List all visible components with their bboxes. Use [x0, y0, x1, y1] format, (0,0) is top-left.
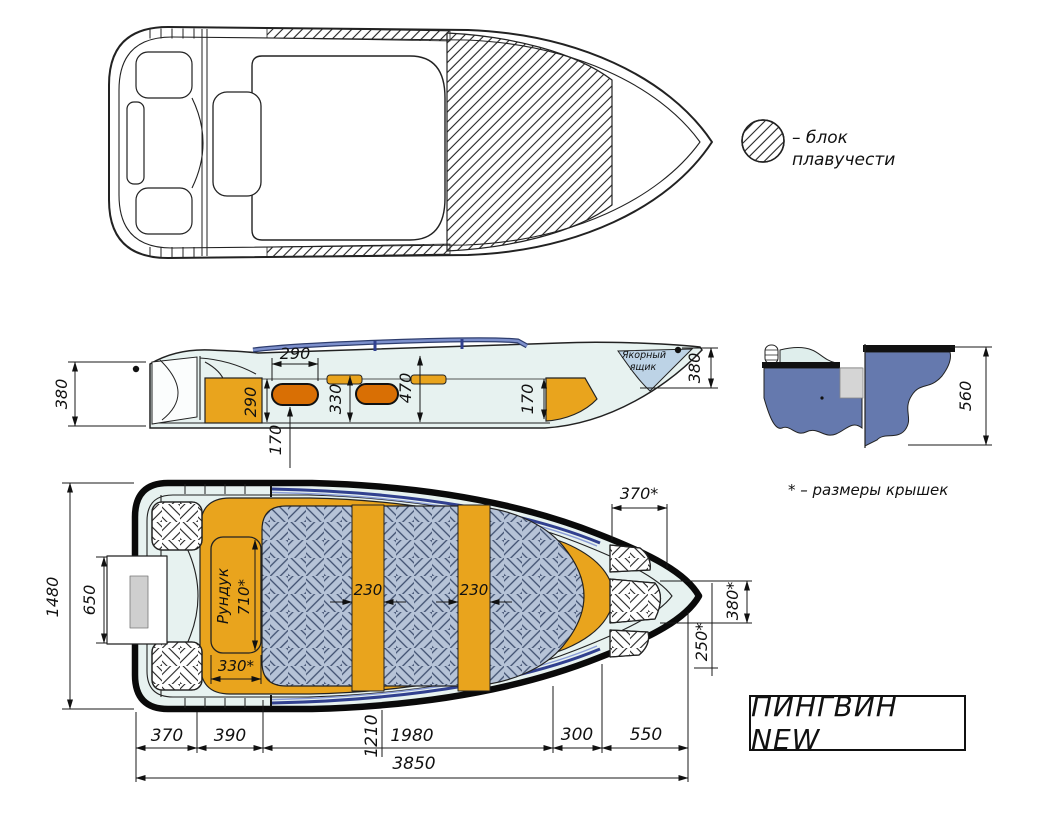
section-dot [820, 396, 823, 399]
gunwale-box-2 [411, 375, 446, 384]
section-gunwale-right [863, 345, 955, 352]
side-dim-bow-locker-height: 170 [520, 369, 536, 429]
plan-dim-bow-hatch-height: 380* [725, 571, 741, 631]
legend-label-line1: – блок [792, 130, 848, 146]
plan-dim-beam: 1480 [45, 567, 61, 627]
section-hull-right [865, 352, 951, 446]
chain-dim-390: 390 [205, 728, 255, 744]
anchor-box-label-line1: Якорный [619, 351, 669, 361]
legend-label-line2: плавучести [792, 152, 895, 168]
motor-well [152, 357, 197, 424]
footnote-covers: * – размеры крышек [788, 482, 948, 498]
buoyancy-block-stern-top-hatch [152, 502, 202, 550]
plan-dim-locker-length: 710* [236, 567, 252, 627]
plan-dim-bow-hatch-width: 370* [610, 486, 668, 502]
plan-dim-locker-width: 330* [208, 658, 264, 674]
chain-dim-1980: 1980 [384, 728, 440, 744]
anchor-box-label-line2: ящик [623, 363, 663, 373]
section-seatback [780, 348, 836, 364]
stern-cushion [136, 52, 192, 98]
plan-locker-label: Рундук [215, 565, 231, 627]
buoyancy-block-stern-bottom-hatch [152, 642, 202, 690]
plan-dim-transom-cutout: 650 [82, 570, 98, 630]
boat-model-title: ПИНГВИН NEW [751, 690, 964, 756]
chain-dim-1210: 1210 [364, 706, 380, 766]
side-dim-mid-locker-height: 330 [328, 369, 344, 429]
top-view-drawing [109, 27, 712, 258]
title-box: ПИНГВИН NEW [749, 695, 966, 751]
chain-dim-550: 550 [620, 727, 672, 743]
console [213, 92, 261, 196]
seat-pill-2 [356, 384, 398, 404]
deck-checker-floor [262, 506, 584, 686]
plan-dim-bench2: 230 [448, 582, 500, 598]
cockpit-opening [252, 56, 445, 240]
buoyancy-legend-hatch [742, 120, 784, 162]
bow-light [675, 347, 681, 353]
seat-pill-1 [272, 384, 318, 405]
boat-dimension-drawing: – блок плавучести 380 290 290 170 330 47… [0, 0, 1058, 822]
plan-dim-bench1: 230 [342, 582, 394, 598]
motor-mount-pad [130, 576, 148, 628]
chain-dim-370: 370 [142, 728, 192, 744]
bow-hatch-mid-hatch [610, 579, 661, 623]
side-dim-stern-box-height: 290 [243, 372, 259, 432]
side-dim-transom-height: 380 [54, 364, 70, 424]
side-dim-bow-height: 380 [687, 338, 703, 398]
section-roller [765, 345, 778, 364]
chain-dim-300: 300 [552, 727, 602, 743]
bow-patch-bottom-hatch [610, 630, 649, 657]
stern-cleat [133, 366, 139, 372]
side-dim-seat-width: 290 [272, 346, 318, 362]
stern-cushion [136, 188, 192, 234]
plan-view-drawing [62, 483, 752, 709]
plan-dim-bow-hatch-length: 250* [694, 612, 710, 672]
side-dim-seat-to-floor: 170 [268, 410, 284, 470]
legend-swatch [742, 120, 784, 162]
bow-buoyancy-hatch [447, 33, 612, 251]
section-gray-box [840, 368, 863, 398]
section-dim-height: 560 [958, 366, 974, 426]
stern-column [127, 102, 144, 184]
section-gunwale-left [762, 362, 840, 368]
side-dim-cockpit-depth: 470 [398, 358, 414, 418]
bow-patch-top-hatch [610, 545, 650, 572]
chain-dim-total: 3850 [386, 756, 442, 772]
